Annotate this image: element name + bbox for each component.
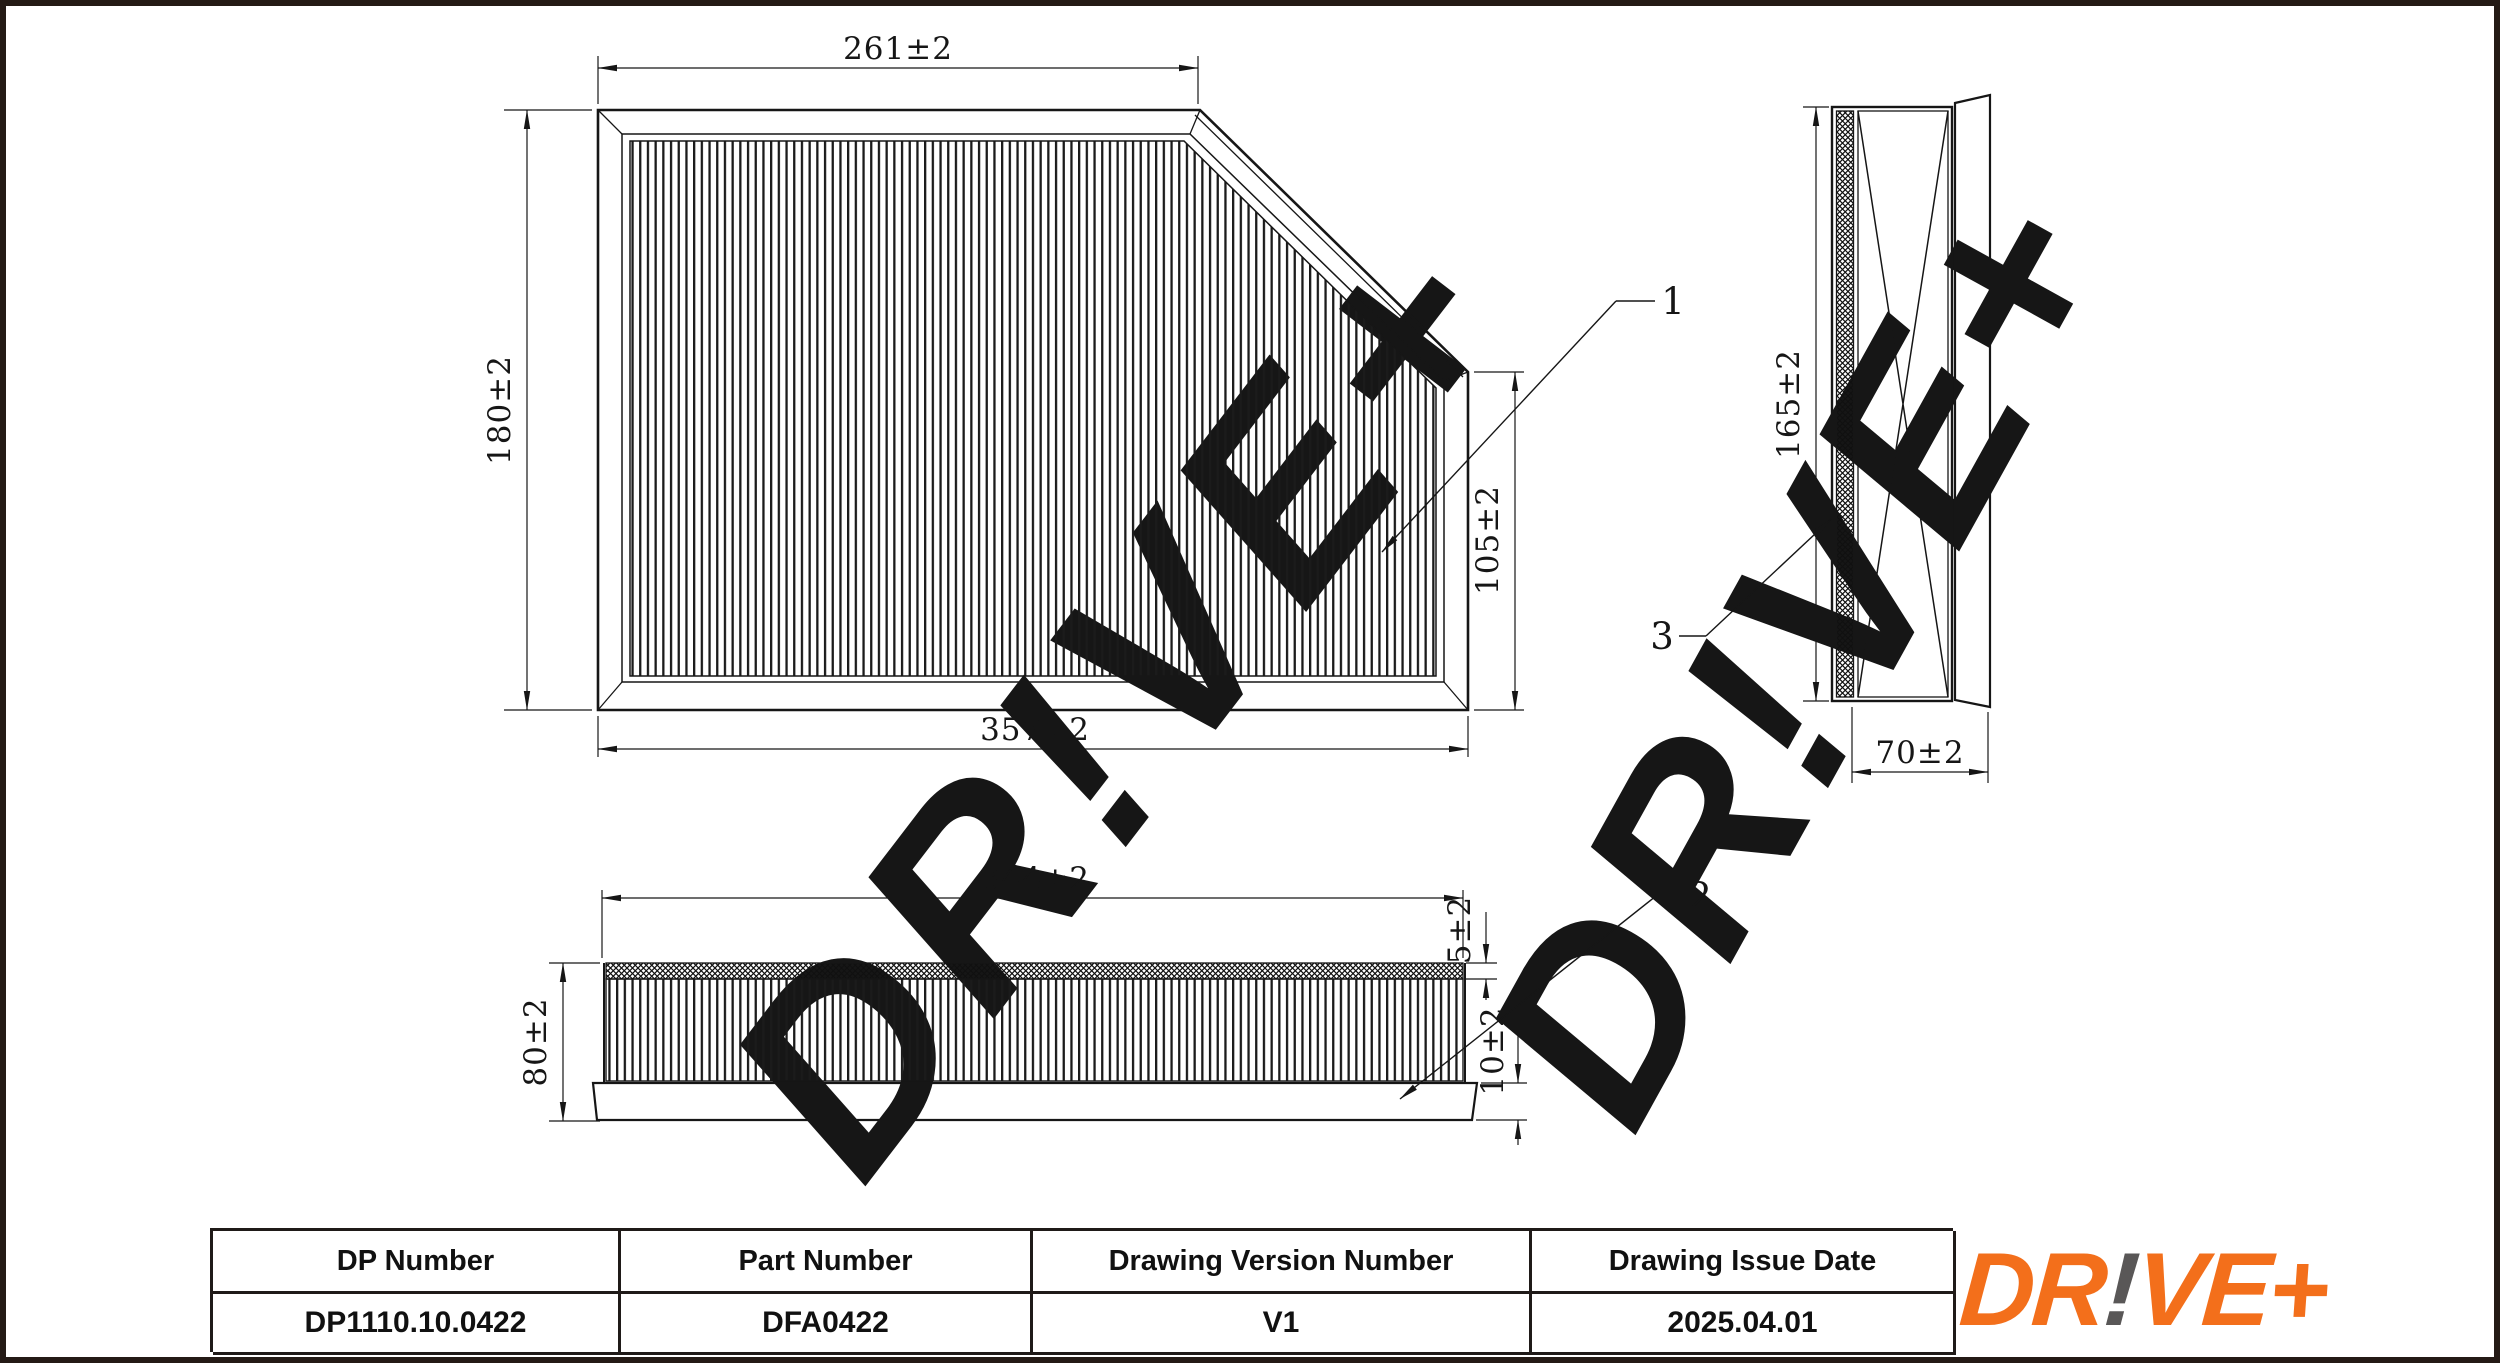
front-dim-width-label: 344±2 bbox=[980, 861, 1090, 897]
technical-drawing: DR!VE+ DR!VE+ 261±2 bbox=[0, 0, 2500, 1363]
brand-logo: DR!VE+ bbox=[1957, 1246, 2330, 1338]
title-block-header-issue-date: Drawing Issue Date bbox=[1532, 1231, 1956, 1294]
title-block-header-part-number: Part Number bbox=[621, 1231, 1033, 1294]
plan-dim-top-label: 261±2 bbox=[843, 31, 953, 67]
title-block-value-drawing-version: V1 bbox=[1033, 1294, 1532, 1355]
front-dim-height-label: 80±2 bbox=[518, 997, 554, 1086]
title-block: DP Number Part Number Drawing Version Nu… bbox=[210, 1228, 1953, 1352]
front-media-strip bbox=[606, 963, 1463, 979]
front-pleated-media bbox=[606, 979, 1463, 1081]
front-dim-media-label: 5±2 bbox=[1442, 896, 1478, 964]
side-dim-height-label: 165±2 bbox=[1771, 349, 1807, 459]
front-dim-frame-label: 10±2 bbox=[1475, 1006, 1511, 1095]
title-block-header-dp-number: DP Number bbox=[213, 1231, 621, 1294]
title-block-value-part-number: DFA0422 bbox=[621, 1294, 1033, 1355]
plan-dim-right-label: 105±2 bbox=[1470, 485, 1506, 595]
front-dim-height bbox=[549, 963, 600, 1121]
plan-dim-bottom-label: 357±2 bbox=[980, 712, 1090, 748]
side-media-strip bbox=[1837, 111, 1854, 697]
logo-text-ve: VE bbox=[2132, 1232, 2273, 1348]
title-block-value-issue-date: 2025.04.01 bbox=[1532, 1294, 1956, 1355]
side-dim-depth-label: 70±2 bbox=[1875, 735, 1964, 771]
drawing-sheet: DR!VE+ DR!VE+ 261±2 bbox=[0, 0, 2500, 1363]
title-block-header-drawing-version: Drawing Version Number bbox=[1033, 1231, 1532, 1294]
plan-dim-left-label: 180±2 bbox=[482, 355, 518, 465]
logo-plus: + bbox=[2265, 1232, 2331, 1348]
callout-3-label: 3 bbox=[1650, 615, 1674, 658]
callout-2-label: 2 bbox=[1688, 875, 1712, 918]
front-base-frame bbox=[593, 1083, 1477, 1120]
title-block-value-dp-number: DP1110.10.0422 bbox=[213, 1294, 621, 1355]
logo-text-dr: DR bbox=[1956, 1232, 2108, 1348]
callout-1-label: 1 bbox=[1661, 280, 1685, 323]
watermark-text: DR!VE+ bbox=[1429, 144, 2172, 1167]
